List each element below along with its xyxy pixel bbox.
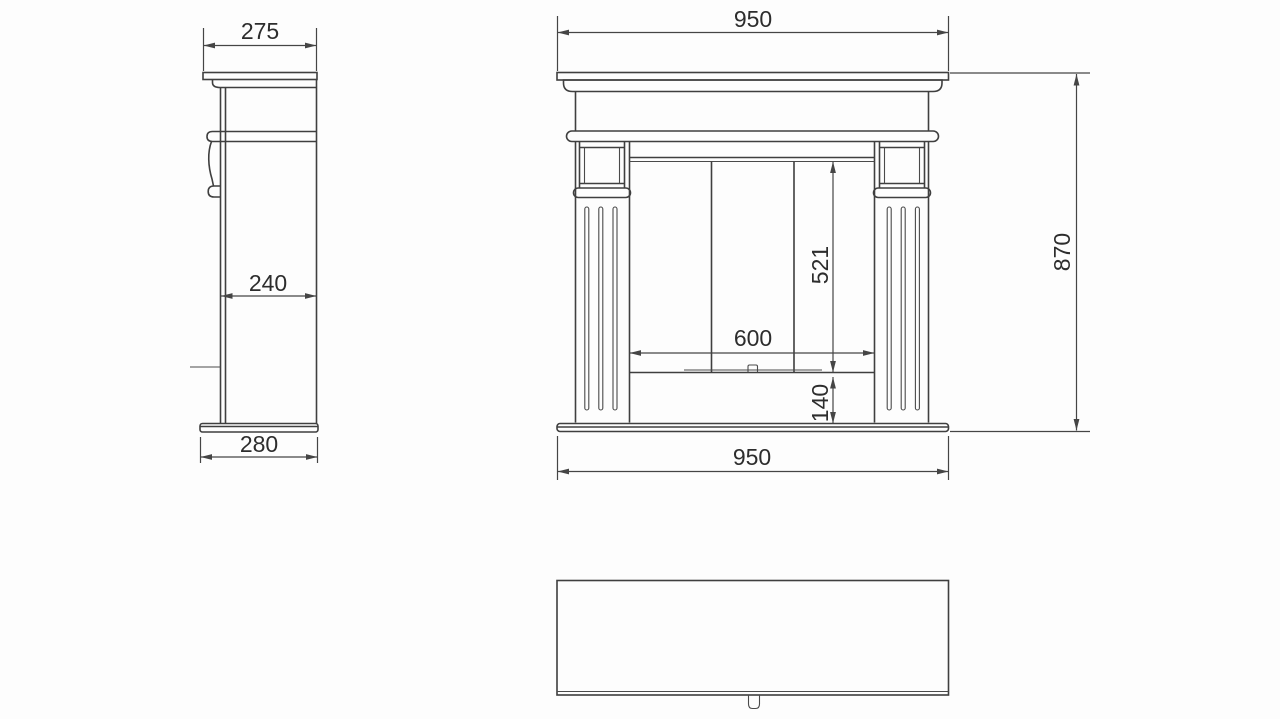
side-torus-bar xyxy=(207,132,317,142)
front-burner-notch xyxy=(748,365,758,373)
side-corbel-knob xyxy=(208,186,220,197)
dim-label-side-shelf-depth: 275 xyxy=(220,18,300,44)
front-left-capital xyxy=(580,142,625,189)
side-corbel-scroll xyxy=(209,142,214,187)
dim-label-front-hearth-height: 140 xyxy=(807,373,833,433)
front-right-capital xyxy=(880,142,925,189)
front-shelf-board xyxy=(557,73,949,81)
dim-label-front-shelf-width: 950 xyxy=(713,6,793,32)
dim-label-front-total-height: 870 xyxy=(1049,217,1075,287)
front-view xyxy=(557,73,949,432)
side-shelf-molding xyxy=(213,80,317,88)
front-torus-bar xyxy=(567,131,939,142)
dim-label-front-base-width: 950 xyxy=(712,444,792,470)
dim-label-front-opening-width: 600 xyxy=(713,325,793,351)
dim-label-front-opening-height: 521 xyxy=(807,230,833,300)
front-right-column-neck-bar xyxy=(874,188,931,198)
top-view-shelf-outline xyxy=(557,581,949,696)
dim-label-side-body-depth: 240 xyxy=(228,270,308,296)
drawing-linework xyxy=(0,0,1280,719)
side-view xyxy=(190,73,318,433)
top-view-tab xyxy=(749,695,760,709)
top-view xyxy=(557,581,949,709)
dim-label-side-base-depth: 280 xyxy=(219,431,299,457)
front-left-column-neck-bar xyxy=(574,188,631,198)
front-left-column-flutes xyxy=(585,207,617,410)
dimension-lines xyxy=(201,16,1091,480)
technical-drawing-canvas: 275 240 280 950 600 521 140 870 950 xyxy=(0,0,1280,719)
front-right-column-flutes xyxy=(887,207,919,410)
front-shelf-molding xyxy=(564,80,943,92)
side-shelf-board xyxy=(203,73,317,80)
